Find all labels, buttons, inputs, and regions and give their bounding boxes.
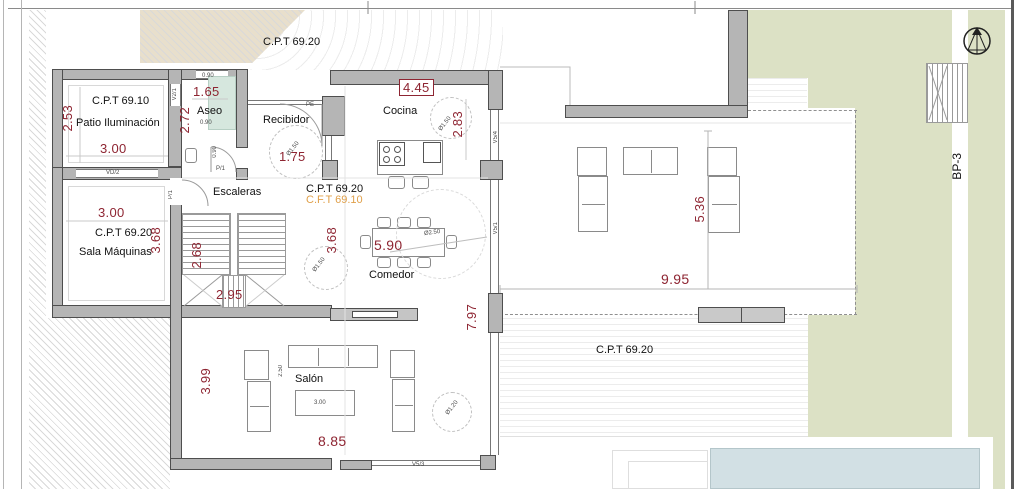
label-recibidor-name: Recibidor [263, 114, 309, 126]
tag-window-vd2: VD/2 [106, 170, 119, 176]
floor-plan: C.P.T 69.20 C.P.T 69.10 Patio Iluminació… [0, 0, 1024, 489]
burner [394, 146, 401, 153]
kitchen-stool [388, 176, 405, 189]
tag-aseo-window-width: 0.90 [202, 73, 214, 79]
dim-patio-width: 3.00 [100, 141, 127, 156]
dim-sofa-depth: 2.50 [278, 365, 284, 377]
chaise-line [250, 406, 269, 407]
dim-aseo-width: 1.65 [193, 84, 220, 99]
chaise [247, 381, 271, 432]
projection-line-bottom [500, 314, 857, 315]
tag-door-p1-escaleras: P/1 [168, 190, 174, 199]
east-wall-corner-top [488, 70, 503, 110]
garden-green-lower [808, 315, 1005, 437]
tag-window-v51: V5/1 [493, 222, 499, 234]
label-patio-cpt: C.P.T 69.10 [92, 95, 149, 107]
projection-line-right [855, 110, 856, 315]
plot-border-left-inner [21, 0, 22, 489]
west-spine-wall [170, 180, 182, 470]
kitchen-sink [423, 142, 441, 163]
dim-cocina-height: 2.83 [450, 111, 465, 138]
dim-living-height: 7.97 [464, 304, 479, 331]
tag-window-v53: V5/3 [412, 462, 424, 468]
window-v52 [490, 333, 499, 455]
dim-cocina-width: 4.45 [399, 79, 434, 96]
plot-border-right [1011, 0, 1014, 489]
dim-salon-width: 8.85 [318, 433, 346, 449]
tag-door-p1-aseo: P/1 [216, 166, 225, 172]
armchair [390, 350, 415, 378]
chaise-line [395, 405, 413, 406]
burner [394, 156, 401, 163]
wing-right-wall [728, 10, 748, 118]
projection-line-top [748, 110, 857, 111]
garden-green-middle [855, 108, 1005, 315]
south-wall-west [170, 458, 332, 470]
sofa-three-seat [288, 345, 378, 368]
armchair [244, 350, 269, 380]
dim-sala-height: 3.68 [148, 227, 163, 254]
label-escaleras-name: Escaleras [213, 186, 261, 198]
dim-terraza-width: 9.95 [661, 271, 689, 287]
label-cocina-name: Cocina [383, 105, 417, 117]
label-cpt-top: C.P.T 69.20 [263, 36, 320, 48]
label-patio-name: Patio Iluminación [76, 117, 160, 129]
tag-window-v54: V5/4 [493, 131, 499, 143]
terrace-chaise [578, 176, 608, 232]
label-terraza-cpt: C.P.T 69.20 [596, 344, 653, 356]
dim-escaleras-width: 2.95 [216, 287, 243, 302]
planter [698, 307, 785, 323]
sofa-divider [318, 348, 319, 366]
tv-screen [352, 311, 398, 318]
window-v51 [490, 180, 499, 293]
tag-door-pe: PE [306, 102, 314, 108]
terrace-armchair [577, 147, 607, 176]
dim-aseo-height: 2.72 [177, 107, 192, 134]
aseo-right-wall-lower [236, 168, 248, 180]
label-nivel-cft: C.F.T 69.10 [306, 194, 363, 206]
aseo-door-gap [236, 148, 248, 168]
cocina-left-block-lower [322, 160, 338, 180]
dim-mesa-width: 3.00 [314, 400, 326, 406]
east-wall-corner-post [480, 455, 496, 470]
cooktop [379, 142, 405, 166]
east-wall-block-mid2 [488, 293, 503, 333]
label-comedor-name: Comedor [369, 269, 414, 281]
garden-green-upper [808, 78, 1005, 108]
terrace-chaise [708, 176, 740, 233]
aseo-right-wall-upper [236, 69, 248, 148]
hatch-block-bottom-left [29, 318, 170, 489]
burner [383, 156, 390, 163]
deck-band-upper [748, 78, 807, 108]
plot-border-left-outer [3, 0, 4, 489]
chaise [392, 379, 415, 432]
label-salon-name: Salón [295, 373, 323, 385]
label-sala-name: Sala Máquinas [79, 246, 152, 258]
terrace-sofa [623, 147, 678, 175]
dim-sala-width: 3.00 [98, 205, 125, 220]
kitchen-stool [412, 176, 429, 189]
dining-chair [377, 217, 391, 228]
planter-divider [741, 308, 742, 322]
east-wall-block-mid1 [480, 160, 503, 180]
terrace-armchair [707, 147, 737, 176]
pool-steps-inner [628, 461, 708, 489]
dining-chair [360, 235, 371, 249]
dining-chair [377, 257, 391, 268]
chaise-line [582, 204, 605, 205]
window-v53 [372, 460, 480, 466]
wing-bottom-wall [565, 105, 748, 118]
tag-aseo-door-width: 0.90 [212, 146, 218, 158]
dim-centro-height: 3.68 [324, 227, 339, 254]
deck-terrace-lower [500, 318, 808, 437]
tag-aseo-mid-width: 0.90 [200, 120, 212, 126]
label-sala-cpt: C.P.T 69.20 [95, 227, 152, 239]
garden-stairs [926, 63, 968, 123]
cocina-left-window [325, 136, 332, 160]
toilet [185, 148, 197, 163]
tv-console [330, 308, 418, 321]
garden-green-strip-bottom [993, 437, 1005, 489]
burner [383, 146, 390, 153]
pool [710, 448, 980, 489]
sofa-divider [651, 150, 652, 173]
turning-circle-dining-large [396, 189, 486, 279]
sofa-divider [348, 348, 349, 366]
tag-window-v21: V2/1 [172, 88, 178, 100]
dim-terraza-height: 5.36 [692, 196, 707, 223]
plot-border-top [8, 8, 1014, 9]
north-arrow-icon [960, 24, 996, 60]
sala-left-wall [52, 167, 63, 318]
south-wall-segment [340, 460, 372, 470]
label-bp3: BP-3 [950, 153, 964, 180]
dim-escaleras-height: 2.68 [189, 242, 204, 269]
chaise-line [712, 204, 737, 205]
dim-patio-height: 2.53 [60, 105, 75, 132]
label-aseo-name: Aseo [197, 105, 222, 117]
cocina-left-block-upper [322, 96, 345, 136]
dim-salon-height: 3.99 [198, 368, 213, 395]
dim-comedor-width: 5.90 [374, 237, 402, 253]
